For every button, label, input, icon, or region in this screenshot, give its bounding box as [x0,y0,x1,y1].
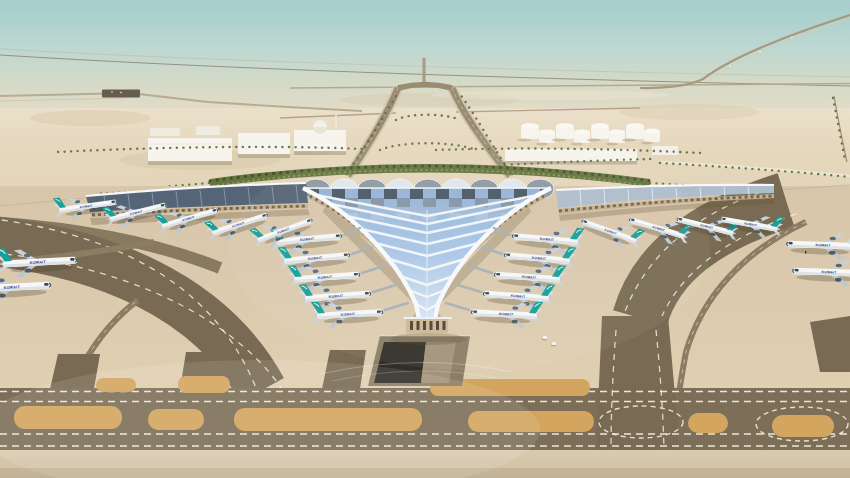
warehouse [148,138,232,162]
warehouse [238,133,290,155]
overpass [102,90,140,98]
airport-aerial-rendering: KUWAIT KUWAIT [0,0,850,478]
sand-mottle [30,110,150,126]
distant-vehicle [111,91,113,93]
distant-vehicle [729,65,731,67]
distant-vehicle [759,51,761,53]
sand-highlight [430,90,670,100]
sand-mottle [620,104,760,120]
rendering-canvas: KUWAIT KUWAIT [0,0,850,478]
distant-vehicle [791,36,793,38]
distant-vehicle [120,92,122,94]
small-building [652,146,678,155]
